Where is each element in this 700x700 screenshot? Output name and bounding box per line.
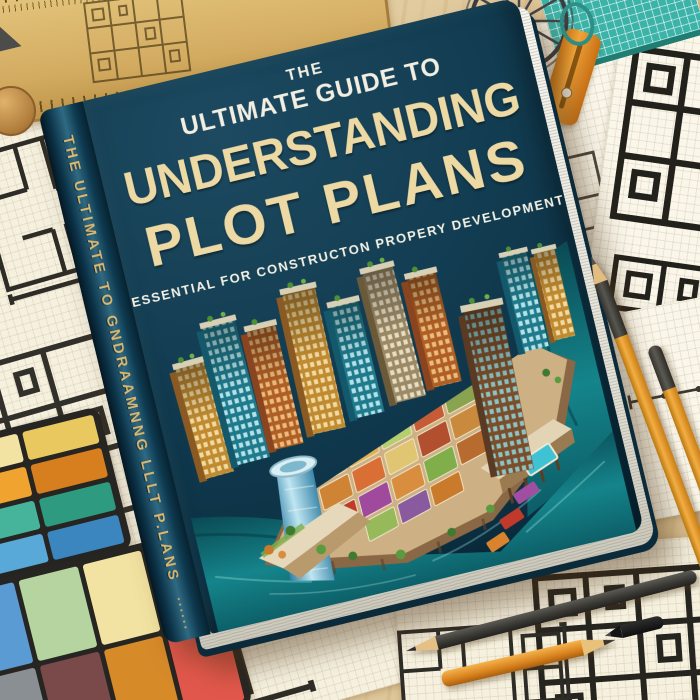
desk-scene: THE ULTIMATE TO GNDRAAMNNG LLLT P.LANS •…: [0, 0, 700, 700]
spine-footer-marks: ••••••: [174, 597, 191, 633]
